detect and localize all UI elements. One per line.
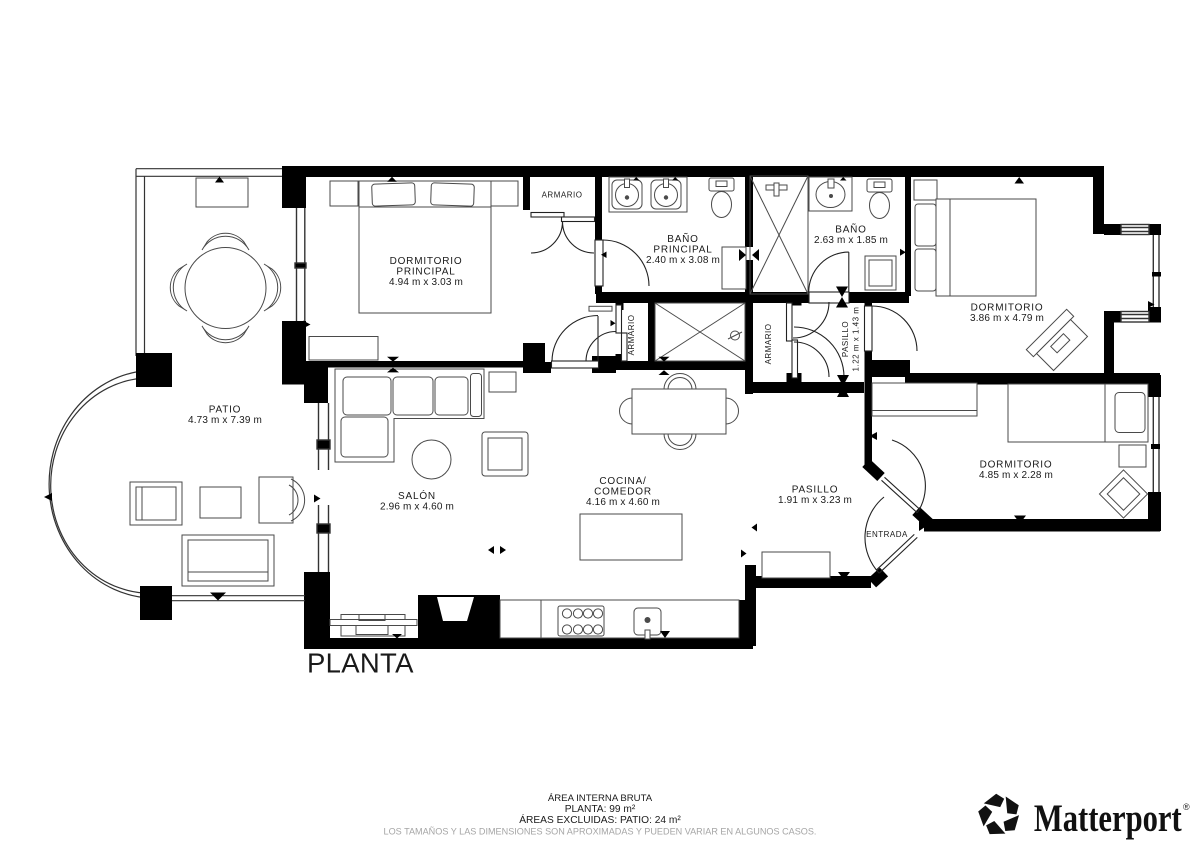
svg-text:LOS TAMAÑOS Y LAS DIMENSIONES: LOS TAMAÑOS Y LAS DIMENSIONES SON APROXI…: [384, 827, 817, 837]
svg-text:Matterport: Matterport: [1034, 797, 1182, 840]
svg-text:1.22 m x 1.43 m: 1.22 m x 1.43 m: [852, 307, 861, 372]
svg-text:COCINA/: COCINA/: [599, 476, 646, 487]
svg-text:4.73 m x 7.39 m: 4.73 m x 7.39 m: [188, 415, 262, 426]
svg-text:DORMITORIO: DORMITORIO: [390, 256, 463, 267]
svg-text:3.86 m x 4.79 m: 3.86 m x 4.79 m: [970, 313, 1044, 324]
svg-text:PASILLO: PASILLO: [792, 485, 839, 496]
svg-text:ÁREAS EXCLUIDAS: PATIO: 24 m²: ÁREAS EXCLUIDAS: PATIO: 24 m²: [519, 813, 681, 826]
svg-text:SALÓN: SALÓN: [398, 489, 436, 502]
svg-text:1.91 m x 3.23 m: 1.91 m x 3.23 m: [778, 495, 852, 506]
svg-text:DORMITORIO: DORMITORIO: [971, 303, 1044, 314]
svg-text:®: ®: [1183, 802, 1190, 812]
svg-text:ARMARIO: ARMARIO: [764, 324, 773, 365]
svg-text:4.94 m x 3.03 m: 4.94 m x 3.03 m: [389, 277, 463, 288]
svg-text:COMEDOR: COMEDOR: [594, 487, 652, 498]
svg-text:PRINCIPAL: PRINCIPAL: [653, 245, 712, 256]
svg-text:DORMITORIO: DORMITORIO: [980, 460, 1053, 471]
svg-text:2.96 m x 4.60 m: 2.96 m x 4.60 m: [380, 502, 454, 513]
svg-text:BAÑO: BAÑO: [835, 223, 867, 236]
svg-text:ARMARIO: ARMARIO: [542, 191, 583, 200]
svg-text:PRINCIPAL: PRINCIPAL: [396, 267, 455, 278]
svg-text:ENTRADA: ENTRADA: [866, 530, 908, 539]
svg-text:PLANTA: 99 m²: PLANTA: 99 m²: [565, 804, 636, 815]
svg-text:4.85 m x 2.28 m: 4.85 m x 2.28 m: [979, 470, 1053, 481]
svg-text:ÁREA INTERNA BRUTA: ÁREA INTERNA BRUTA: [548, 793, 653, 804]
svg-text:2.63 m x 1.85 m: 2.63 m x 1.85 m: [814, 235, 888, 246]
svg-text:PATIO: PATIO: [209, 405, 242, 416]
svg-text:2.40 m x 3.08 m: 2.40 m x 3.08 m: [646, 255, 720, 266]
svg-text:PASILLO: PASILLO: [841, 321, 850, 357]
svg-text:PLANTA: PLANTA: [307, 648, 414, 679]
svg-text:4.16 m x 4.60 m: 4.16 m x 4.60 m: [586, 497, 660, 508]
svg-text:ARMARIO: ARMARIO: [627, 315, 636, 356]
svg-text:BAÑO: BAÑO: [667, 232, 699, 245]
